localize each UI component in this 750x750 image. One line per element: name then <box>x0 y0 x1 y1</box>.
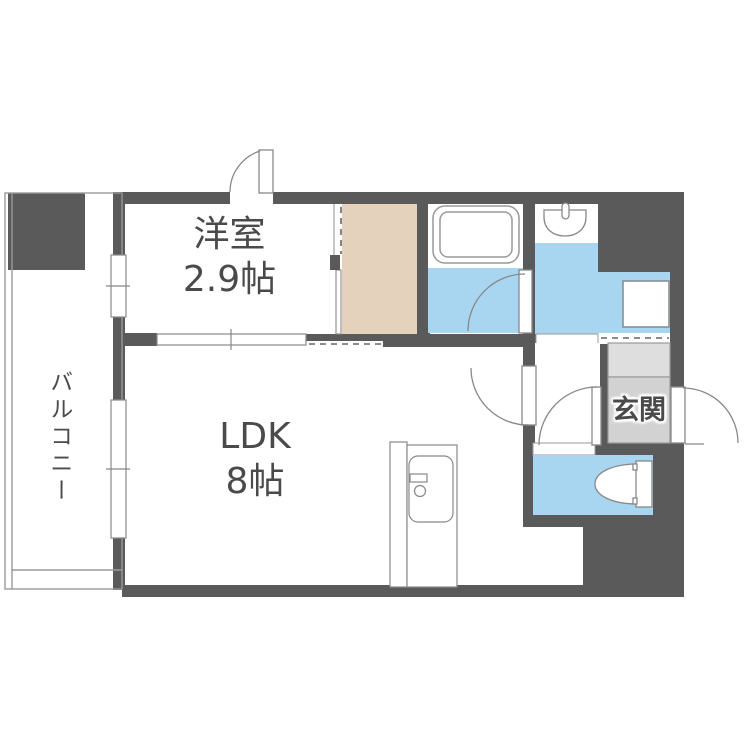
entrance-label: 玄関 <box>604 394 674 428</box>
western-room-name: 洋室 <box>125 212 334 257</box>
toilet-doorway <box>533 443 595 455</box>
ldk-floor-notch <box>523 527 573 585</box>
wall-block-top-right <box>598 192 670 272</box>
floorplan: 洋室 2.9帖 LDK 8帖 バルコニー 玄関 <box>0 0 750 750</box>
wall-block-top-left <box>8 193 85 270</box>
ldk-label: LDK 8帖 <box>150 414 360 504</box>
wall-closet-bottom <box>306 334 417 341</box>
kitchen-sink-icon <box>390 442 457 587</box>
bathtub-icon <box>433 206 519 263</box>
hallway-floor <box>535 343 600 443</box>
washing-machine-pan-icon <box>623 281 669 327</box>
bathroom-floor <box>428 268 523 333</box>
closet-floor <box>342 204 417 334</box>
wall-bottom <box>122 585 584 597</box>
floorplan-drawing <box>0 0 750 750</box>
western-door-gap <box>230 192 273 204</box>
ldk-size: 8帖 <box>150 459 360 504</box>
wall-block-bottom-right <box>583 515 684 597</box>
washroom-floor <box>535 243 598 334</box>
wall-closet-bottom-right <box>383 341 417 347</box>
wall-western-bottom-left <box>122 333 157 346</box>
western-room-size: 2.9帖 <box>125 257 334 302</box>
door-entrance <box>671 387 738 444</box>
western-room-label: 洋室 2.9帖 <box>125 212 334 302</box>
window-ldk <box>106 400 130 538</box>
wall-under-bath <box>417 334 536 347</box>
ldk-name: LDK <box>150 414 360 459</box>
door-western <box>230 150 273 193</box>
balcony-label: バルコニー <box>44 362 73 512</box>
entrance-step <box>608 343 670 377</box>
closet-partition <box>336 270 341 334</box>
